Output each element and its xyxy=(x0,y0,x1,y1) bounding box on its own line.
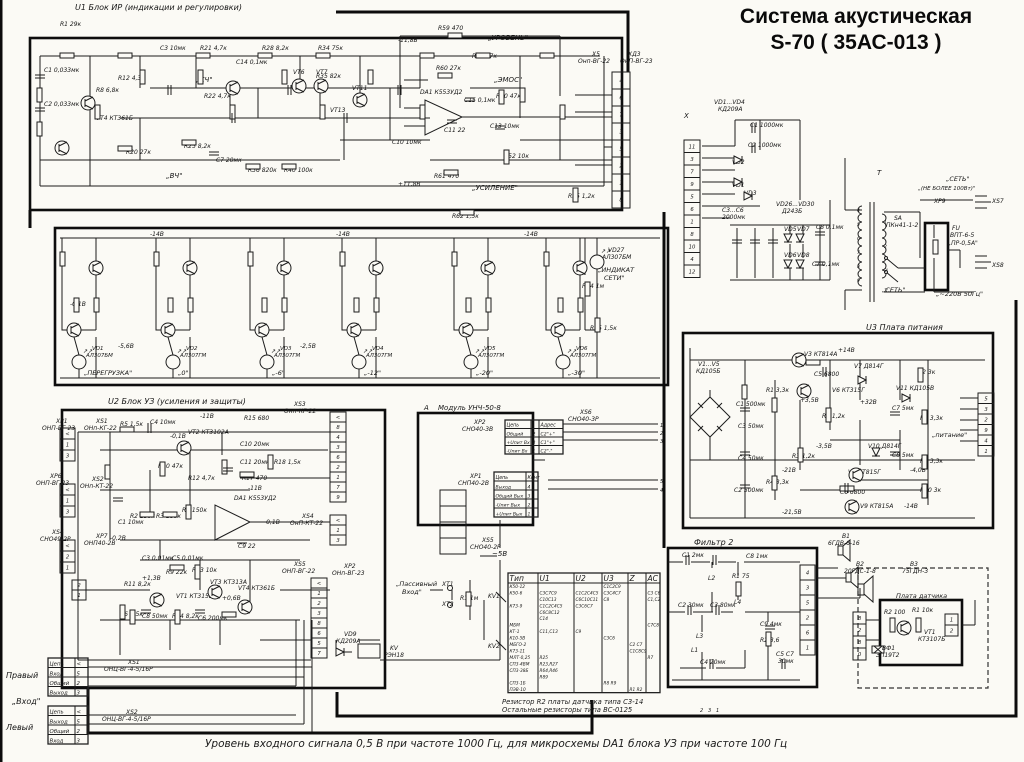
connector-pin-number: 4 xyxy=(690,257,693,263)
transistor-icon xyxy=(347,323,361,337)
resistor-icon xyxy=(476,53,490,58)
resistor-icon xyxy=(170,565,184,570)
capacitor-icon xyxy=(113,498,123,501)
schematic-label: VT11 xyxy=(352,85,367,92)
schematic-label: V11 КД105В xyxy=(896,385,934,392)
schematic-label: С1 0,033мк xyxy=(44,67,80,74)
schematic-label: С11 22 xyxy=(444,127,466,134)
schematic-label: ХР7 xyxy=(95,533,108,540)
schematic-label: SA xyxy=(894,215,902,222)
connector-pin-number: 1 xyxy=(336,528,339,534)
block-u1-outline xyxy=(30,38,622,210)
schematic-label: С8 0,1мк xyxy=(816,224,844,231)
connector-pin-number: 2 xyxy=(806,616,810,622)
led-icon xyxy=(556,355,570,369)
schematic-label: VT6 xyxy=(293,69,305,76)
diode-icon xyxy=(336,648,344,656)
speaker-b3-dashed-box xyxy=(858,568,988,688)
resistor-icon xyxy=(806,360,820,365)
resistor-icon xyxy=(438,73,452,78)
schematic-label: С14 0,1мк xyxy=(236,59,268,66)
schematic-label: ~5В xyxy=(492,550,507,558)
schematic-label: VT7 xyxy=(316,69,328,76)
indicator-led-part: АЛ307ГМ xyxy=(179,353,206,359)
resistor-icon xyxy=(222,460,227,474)
type-table-cell: С3С4С7 xyxy=(604,590,621,596)
schematic-label: С3 50мк xyxy=(738,423,764,430)
resistor-icon xyxy=(196,53,210,58)
resistor-icon xyxy=(560,105,565,119)
schematic-label: С5 6800 xyxy=(814,371,839,378)
led-icon xyxy=(352,355,366,369)
indicator-label: „-6" xyxy=(272,369,285,377)
resistor-icon xyxy=(140,70,145,84)
indicator-led-designator: VD4 xyxy=(372,346,384,352)
transistor-icon xyxy=(551,323,565,337)
connector-pin-number: 6 xyxy=(806,631,810,637)
input-left-header: Цепь xyxy=(50,710,64,716)
schematic-label: VD5 xyxy=(784,226,797,233)
schematic-label: С10 10мк xyxy=(392,139,422,146)
capacitor-icon xyxy=(195,610,205,613)
input-right-cell: Вход xyxy=(50,672,64,678)
connector-pin-number: 5 xyxy=(690,194,694,200)
schematic-label: VT1 КТ315Б xyxy=(176,593,213,600)
schematic-label: 2000мк xyxy=(722,214,746,221)
resistor-icon xyxy=(60,53,74,58)
connector-pin-number: 0 xyxy=(858,652,862,658)
bottom-caption: Уровень входного сигнала 0,5 В при часто… xyxy=(205,738,845,750)
page-title: Система акустическая S-70 ( 35АС-013 ) xyxy=(688,4,1024,57)
type-table-cell: С1С2С4С5 xyxy=(576,590,599,596)
schematic-label: R12 4,7к xyxy=(188,475,215,482)
resistor-icon xyxy=(826,408,831,422)
schematic-label: Д243Б xyxy=(781,208,802,215)
transistor-icon xyxy=(797,384,811,398)
resistor-icon xyxy=(890,618,895,632)
schematic-label: 2 xyxy=(884,244,887,250)
transistor-icon xyxy=(89,261,103,275)
resistor-icon xyxy=(140,512,154,517)
resistor-icon xyxy=(918,368,923,382)
connector-pin-number: 4 xyxy=(984,438,987,444)
schematic-label: Правый xyxy=(6,671,38,680)
module-in-cell: -Uпит Вх xyxy=(507,449,528,455)
schematic-label: В3 xyxy=(910,561,918,568)
schematic-label: R18 1,5к xyxy=(274,459,301,466)
type-table-cell: С2 С7 xyxy=(630,642,643,648)
type-table-cell: R1 R2 xyxy=(630,687,643,693)
connector-pin-number: 4 xyxy=(336,435,339,441)
input-left-cell: Вход xyxy=(50,739,64,745)
type-table-header: U3 xyxy=(604,574,614,583)
schematic-label: С3 10мк xyxy=(160,45,186,52)
schematic-label: С8 1мк xyxy=(746,553,768,560)
resistor-icon xyxy=(282,70,287,84)
resistor-icon xyxy=(168,298,173,312)
schematic-label: R59 470 xyxy=(438,25,463,32)
diode-icon xyxy=(784,234,792,242)
connector-pin-number: 3 xyxy=(690,157,694,163)
module-in-header: Цепь xyxy=(507,423,520,429)
schematic-label: -21В xyxy=(782,467,796,474)
transistor-icon xyxy=(459,323,473,337)
module-out-header: Конт xyxy=(528,475,540,481)
resistor-icon xyxy=(772,476,777,490)
schematic-label: VD7 xyxy=(797,226,810,233)
schematic-label: 1 xyxy=(660,423,663,429)
schematic-label: -11,8В xyxy=(398,37,418,44)
schematic-label: -3,5В xyxy=(816,443,832,450)
resistor-icon xyxy=(37,88,42,102)
connector-pin-number: < xyxy=(336,518,340,524)
transistor-icon xyxy=(845,500,859,514)
schematic-page: U1 Блок ИР (индикации и регулировки)R1 2… xyxy=(0,0,1024,762)
schematic-label: КД209А xyxy=(336,638,361,645)
transistor-icon xyxy=(277,261,291,275)
resistor-icon xyxy=(282,298,287,312)
schematic-label: ОНп-ВГ-23 xyxy=(332,570,365,577)
schematic-label: ХР2 xyxy=(343,563,356,570)
schematic-label: Фильтр 2 xyxy=(694,538,733,547)
input-right-cell: Выход xyxy=(50,691,68,697)
note-line-2: Остальные резисторы типа ВС-0125 xyxy=(502,706,702,714)
schematic-label: „Пассивный xyxy=(396,580,437,588)
diode-icon xyxy=(796,260,804,268)
type-table-cell: С1,С2 xyxy=(648,597,661,603)
type-table-cell: ПЭВ-10 xyxy=(510,687,526,693)
schematic-label: -5,6В xyxy=(118,343,134,350)
connector-pin-number: 9 xyxy=(690,182,694,188)
type-table-cell: К73-11 xyxy=(510,648,526,654)
type-table-cell: С6С8С12 xyxy=(540,610,560,616)
schematic-label: С1 500мк xyxy=(736,401,766,408)
resistor-icon xyxy=(262,298,267,312)
capacitor-icon xyxy=(890,412,900,415)
connector-pin-number: 3 xyxy=(66,510,70,516)
type-table-cell: С1С2С4С5 xyxy=(540,603,563,609)
resistor-icon xyxy=(466,298,471,312)
opamp-da1-u2 xyxy=(215,505,250,540)
resistor-icon xyxy=(105,465,110,479)
indicator-led-designator: VD6 xyxy=(576,346,588,352)
input-left-cell: 3 xyxy=(77,739,81,745)
schematic-label: С1 10мк xyxy=(118,519,144,526)
module-in-cell: 3 xyxy=(533,440,536,446)
transistor-icon xyxy=(292,79,306,93)
indicator-label: „-20" xyxy=(476,369,493,377)
schematic-label: С11 20мк xyxy=(240,459,270,466)
schematic-label: VT4 КТ361Б xyxy=(238,585,275,592)
schematic-label: +32В xyxy=(860,399,877,406)
schematic-label: С9 4мк xyxy=(760,621,782,628)
connector-pin-number: 3 xyxy=(317,611,321,617)
connector-pin-number: 1 xyxy=(336,475,339,481)
schematic-label: R22 4,7к xyxy=(204,93,231,100)
connector-pin-number: 2 xyxy=(858,628,862,634)
schematic-label: +1,3В xyxy=(142,575,161,582)
resistor-icon xyxy=(246,164,260,169)
schematic-label: 20ГДС-1-8 xyxy=(844,568,876,575)
type-table-cell: К50-12 xyxy=(510,584,526,590)
schematic-label: ОНЦ-ВГ-4-5/16Р xyxy=(104,666,153,673)
module-in-cell: С2"+" xyxy=(541,432,555,438)
connector-pin-number: 10 xyxy=(689,244,696,250)
schematic-label: С3 80мк xyxy=(710,602,736,609)
transistor-icon xyxy=(897,621,911,635)
schematic-label: XT1 xyxy=(441,581,454,588)
led-icon xyxy=(166,355,180,369)
schematic-label: R15 680 xyxy=(244,415,269,422)
resistor-icon xyxy=(268,455,273,469)
transistor-icon xyxy=(67,323,81,337)
resistor-icon xyxy=(316,53,330,58)
indicator-led-part: АЛ307ГМ xyxy=(273,353,300,359)
schematic-label: 4 xyxy=(857,208,860,214)
led-icon xyxy=(464,355,478,369)
resistor-icon xyxy=(486,298,491,312)
indicator-label: „ПЕРЕГРУЗКА" xyxy=(84,369,132,377)
note-line-1: Резистор R2 платы датчика типа С3-14 xyxy=(502,698,702,706)
schematic-label: „ВЧ" xyxy=(166,172,182,180)
module-out-cell: Выход xyxy=(496,485,511,491)
input-right-cell: 2 xyxy=(77,681,81,687)
connector-pin-number: < xyxy=(65,544,69,550)
type-table-cell: С3С6 xyxy=(604,636,616,642)
schematic-label: -0,1В xyxy=(170,433,186,440)
type-table-cell: С1С8С9 xyxy=(630,648,647,654)
resistor-icon xyxy=(198,70,203,84)
schematic-label: VT13 xyxy=(330,107,346,114)
resistor-icon xyxy=(95,105,100,119)
schematic-label: ХР6 xyxy=(49,473,62,480)
module-out-cell: 1 xyxy=(528,512,531,518)
indicator-led-part: АЛ307ГМ xyxy=(365,353,392,359)
resistor-icon xyxy=(258,53,272,58)
diode-icon xyxy=(872,448,880,456)
module-out-cell: 2 xyxy=(528,503,531,509)
resistor-notes: Резистор R2 платы датчика типа С3-14 Ост… xyxy=(502,698,702,715)
schematic-label: КТ3107Б xyxy=(918,636,945,643)
resistor-icon xyxy=(520,88,525,102)
schematic-label: Модуль УНЧ-50-8 xyxy=(438,404,501,412)
schematic-label: „УРОВЕНЬ" xyxy=(488,34,528,42)
schematic-label: U3 Плата питания xyxy=(866,323,943,332)
connector-pin-number: 8 xyxy=(858,640,862,646)
resistor-icon xyxy=(340,252,345,266)
schematic-label: ХР9 xyxy=(933,198,946,205)
schematic-label: U1 Блок ИР (индикации и регулировки) xyxy=(75,3,242,12)
resistor-icon xyxy=(188,298,193,312)
schematic-label: С2 1000мк xyxy=(748,142,782,149)
schematic-label: ПКн41-1-2 xyxy=(886,222,918,229)
input-right-header: < xyxy=(77,662,82,668)
connector-pin-number: 7 xyxy=(317,651,321,657)
type-table-cell: МБГО-2 xyxy=(510,642,527,648)
input-right-cell: 5 xyxy=(77,672,81,678)
resistor-icon xyxy=(922,484,927,498)
capacitor-icon xyxy=(288,85,291,95)
block-filter2-outline xyxy=(668,548,817,687)
schematic-label: XS6 xyxy=(579,409,592,416)
connector-pin-number: 2 xyxy=(77,583,81,589)
resistor-icon xyxy=(499,90,504,104)
schematic-label: 75ГДН-3 xyxy=(902,568,928,575)
schematic-label: L4 xyxy=(734,599,741,606)
type-table-cell: R23,R27 xyxy=(540,661,559,667)
schematic-label: V1...V5 xyxy=(698,361,720,368)
capacitor-icon xyxy=(168,85,171,95)
schematic-label: „ПР-0,5А" xyxy=(948,240,978,247)
schematic-label: R8 6,8к xyxy=(96,87,119,94)
module-out-cell: 3 xyxy=(528,494,531,500)
schematic-label: В1 xyxy=(842,533,850,540)
transistor-icon xyxy=(792,353,806,367)
connector-pin-number: 1 xyxy=(66,566,69,572)
resistor-icon xyxy=(466,592,471,606)
indicator-led-part: АЛ307ГМ xyxy=(477,353,504,359)
schematic-label: С2 0,033мк xyxy=(44,101,80,108)
connector-pin-number: 9 xyxy=(336,495,340,501)
led-icon xyxy=(260,355,274,369)
resistor-icon xyxy=(320,105,325,119)
schematic-label: СНО40-3Р xyxy=(568,416,599,423)
schematic-label: T xyxy=(877,169,882,177)
resistor-icon xyxy=(504,150,509,164)
input-right-cell: Общий xyxy=(50,681,70,687)
schematic-label: 9 xyxy=(857,278,860,284)
schematic-label: 2 xyxy=(660,431,663,437)
capacitor-icon xyxy=(237,540,247,543)
diode-icon xyxy=(784,260,792,268)
resistor-icon xyxy=(840,486,854,491)
schematic-label: ОнП-ВГ-23 xyxy=(620,58,653,65)
module-in-cell: С2"-" xyxy=(541,449,553,455)
resistor-icon xyxy=(118,146,132,151)
input-left-cell: 5 xyxy=(77,720,81,726)
schematic-label: U2 Блок УЗ (усиления и защиты) xyxy=(108,397,246,406)
schematic-label: XS5 xyxy=(481,537,494,544)
led-arrows-icon: ↗↗ xyxy=(601,248,611,255)
schematic-label: R55 1,2к xyxy=(568,193,595,200)
connector-pin-number: 1 xyxy=(66,443,69,449)
schematic-label: СЕТИ" xyxy=(604,274,624,282)
transistor-icon xyxy=(208,585,222,599)
connector-pin-number: 2 xyxy=(66,555,70,561)
connector-pin-number: 1 xyxy=(984,449,987,455)
resistor-icon xyxy=(354,298,359,312)
schematic-label: XS2 xyxy=(125,709,138,716)
type-table-cell: С3С6С7 xyxy=(576,603,593,609)
schematic-label: 6 xyxy=(857,236,860,242)
module-in-cell: С1"+" xyxy=(541,440,555,446)
type-table-header: АС xyxy=(647,574,659,583)
connector-pin-number: 1 xyxy=(619,181,622,187)
schematic-label: СНО40-3В xyxy=(462,426,493,433)
connector-pin-number: 1 xyxy=(950,618,953,624)
schematic-label: 3 xyxy=(708,708,711,714)
connector-pin-number: 1 xyxy=(806,646,809,652)
transistor-icon xyxy=(226,81,240,95)
resistor-icon xyxy=(222,612,236,617)
module-out-header: Цепь xyxy=(496,475,509,481)
transistor-icon xyxy=(177,441,191,455)
connector-pin-cell xyxy=(440,538,466,554)
resistor-icon xyxy=(460,210,474,215)
schematic-label: ОНп-КГ-22 xyxy=(84,425,117,432)
schematic-label: R21 4,7к xyxy=(200,45,227,52)
transistor-icon xyxy=(150,593,164,607)
schematic-label: DA1 К553УД2 xyxy=(420,89,463,96)
schematic-label: VD1...VD4 xyxy=(714,99,745,106)
schematic-label: VT2 КТ3102А xyxy=(188,429,229,436)
diode-icon xyxy=(858,376,866,384)
connector-pin-number: 8 xyxy=(690,232,694,238)
schematic-label: R4 3,3к xyxy=(766,479,789,486)
schematic-label: -2,5В xyxy=(300,343,316,350)
schematic-label: 3 xyxy=(660,439,663,445)
resistor-icon xyxy=(420,53,434,58)
connector-pin-number: 6 xyxy=(690,207,694,213)
type-table-cell: С9 xyxy=(576,629,582,635)
schematic-label: XS8 xyxy=(991,262,1004,269)
resistor-icon xyxy=(585,282,590,296)
connector-pin-number: 5 xyxy=(984,396,988,402)
resistor-icon xyxy=(37,122,42,136)
resistor-icon xyxy=(74,298,79,312)
type-table-cell: К50-6 xyxy=(510,590,523,596)
indicator-led-designator: VD2 xyxy=(186,346,198,352)
schematic-label: -11В xyxy=(200,413,214,420)
resistor-icon xyxy=(922,410,927,424)
schematic-label: -14В xyxy=(524,231,538,238)
schematic-label: XS1 xyxy=(95,418,108,425)
resistor-icon xyxy=(558,298,563,312)
schematic-label: „(НЕ БОЛЕЕ 100Вт)" xyxy=(918,186,975,192)
transistor-icon xyxy=(369,261,383,275)
transistor-icon xyxy=(183,261,197,275)
schematic-label: R1 29к xyxy=(60,21,82,28)
schematic-label: ОнП-КТ-22 xyxy=(290,520,323,527)
schematic-label: Левый xyxy=(5,723,33,732)
schematic-label: R1 10к xyxy=(912,607,934,614)
connector-pin-number: 2 xyxy=(336,465,340,471)
schematic-label: Онп-КГ-22 xyxy=(284,408,316,415)
schematic-label: V7 Д814Г xyxy=(854,363,884,370)
resistor-icon xyxy=(130,610,135,624)
resistor-icon xyxy=(766,632,771,646)
schematic-label: С4 50мк xyxy=(738,455,764,462)
connector-pin-number: 6 xyxy=(317,631,321,637)
schematic-label: KV1 xyxy=(488,593,500,600)
schematic-label: VD8 xyxy=(797,252,810,259)
type-table-cell: С11,С13 xyxy=(540,629,559,635)
type-table-cell: СП3-38Б xyxy=(510,668,529,674)
connector-pin-number: < xyxy=(336,415,340,421)
type-table-header: U1 xyxy=(540,574,550,583)
connector-pin-number: 2 xyxy=(317,601,321,607)
schematic-label: 8 xyxy=(857,264,860,270)
schematic-label: С9 22 xyxy=(238,543,256,550)
schematic-label: VT1 xyxy=(924,629,936,636)
schematic-label: -14В xyxy=(336,231,350,238)
resistor-icon xyxy=(195,565,200,579)
input-right-header: Цепь xyxy=(50,662,64,668)
connector-pin-number: 5 xyxy=(317,641,321,647)
resistor-icon xyxy=(448,33,462,38)
schematic-label: 5 xyxy=(660,479,663,485)
schematic-label: „питание" xyxy=(932,431,967,439)
